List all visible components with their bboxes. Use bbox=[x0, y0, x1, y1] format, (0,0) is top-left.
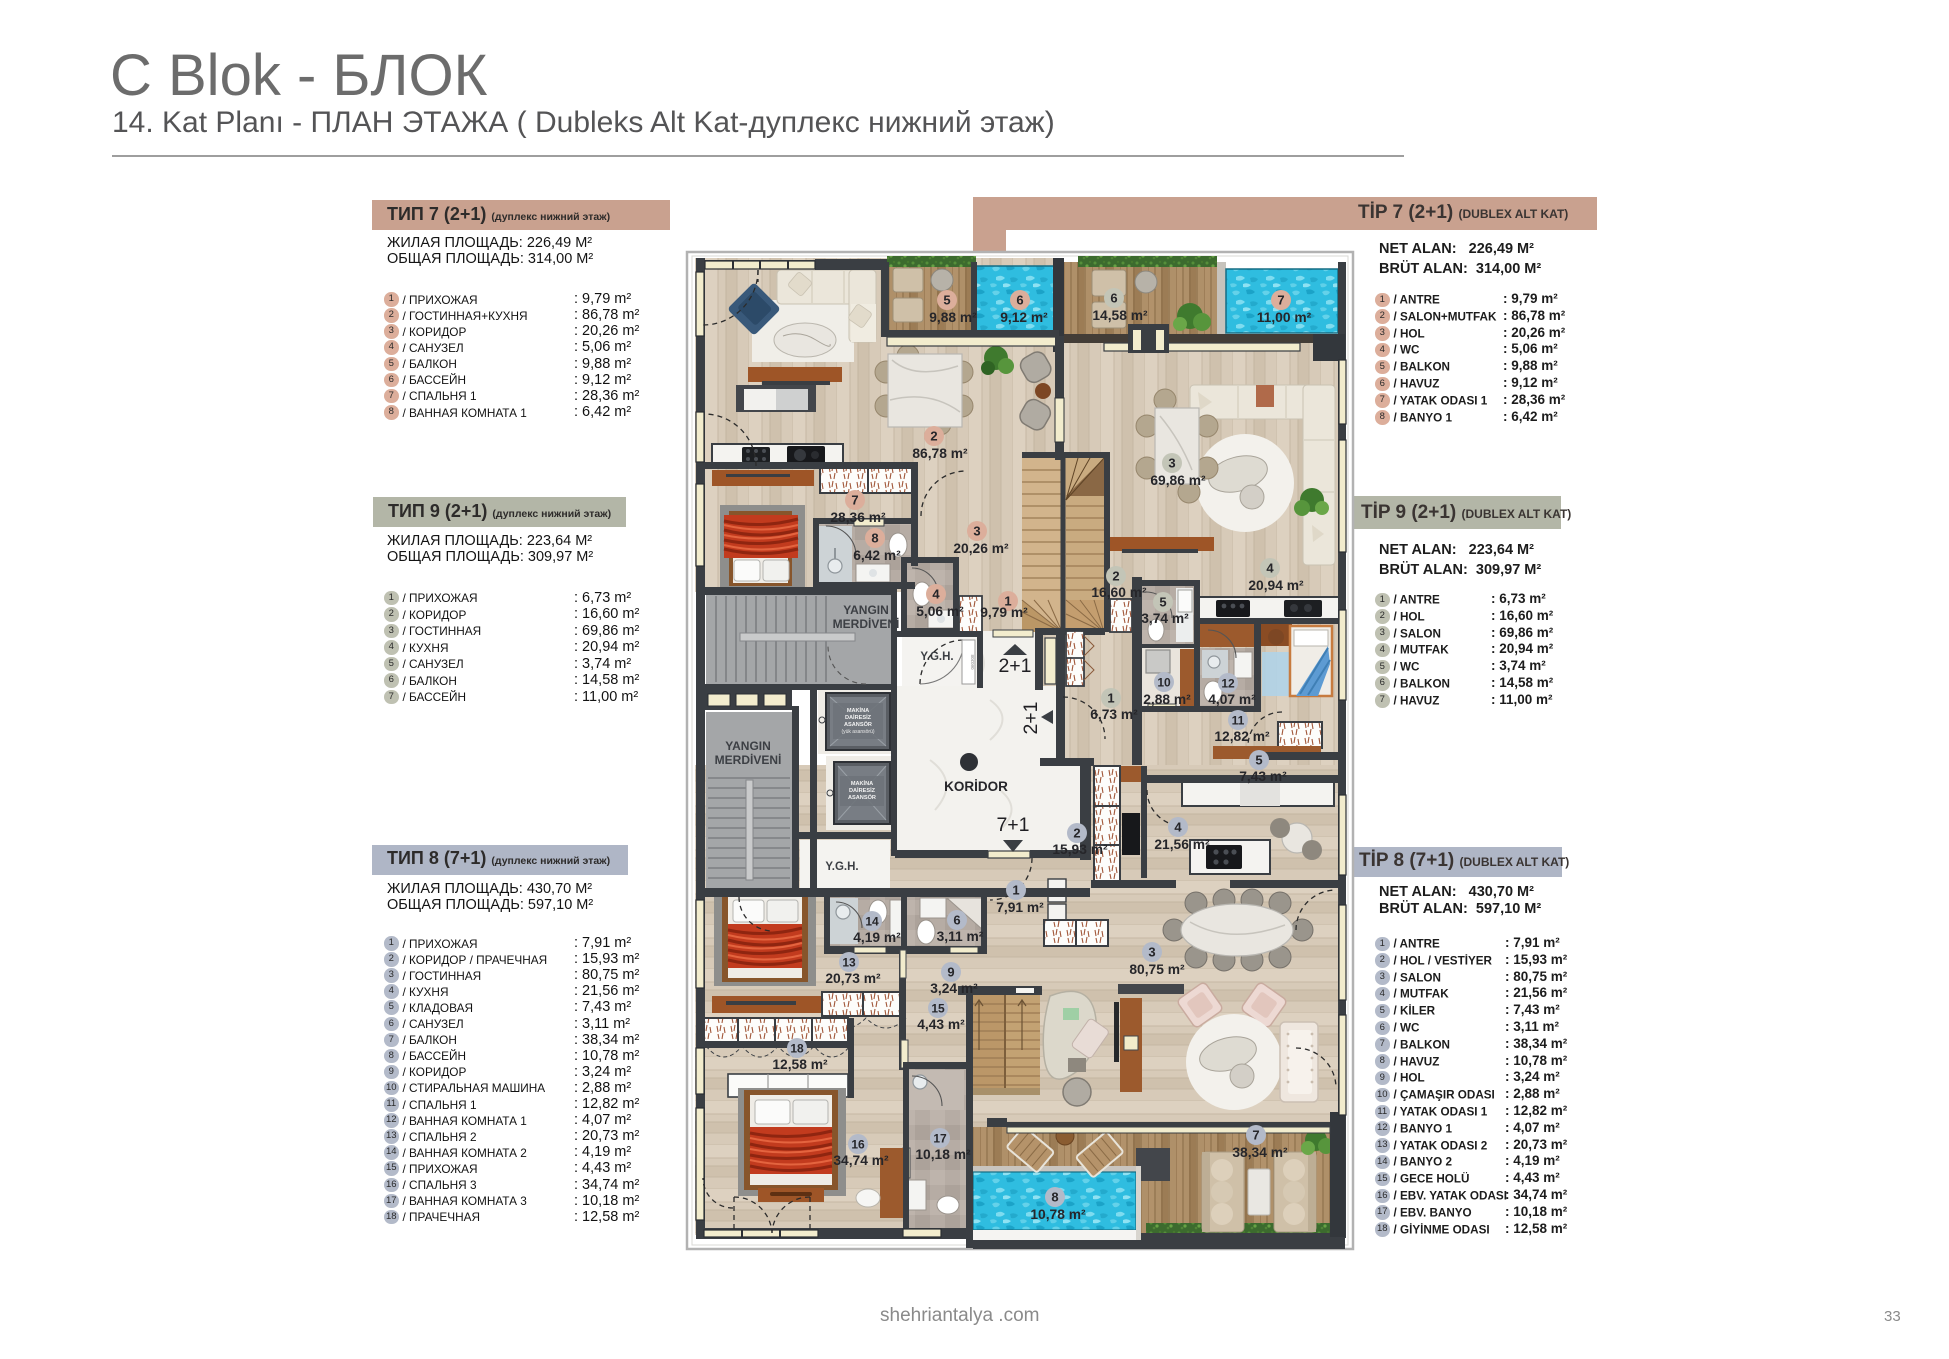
svg-text:21,56 m²: 21,56 m² bbox=[1154, 837, 1210, 852]
svg-text:3,24 m²: 3,24 m² bbox=[930, 981, 978, 996]
svg-text:9: 9 bbox=[947, 965, 954, 980]
svg-text:2+1: 2+1 bbox=[1020, 701, 1042, 734]
svg-text:4: 4 bbox=[1174, 820, 1182, 835]
svg-text:Y.G.H.: Y.G.H. bbox=[920, 651, 953, 663]
svg-text:38,34 m²: 38,34 m² bbox=[1232, 1145, 1288, 1160]
svg-text:12,58 m²: 12,58 m² bbox=[772, 1057, 828, 1072]
svg-text:ASANSÖR: ASANSÖR bbox=[844, 721, 872, 728]
svg-text:14,58 m²: 14,58 m² bbox=[1092, 308, 1148, 323]
svg-text:11: 11 bbox=[1232, 714, 1245, 728]
svg-text:20,94 m²: 20,94 m² bbox=[1248, 578, 1304, 593]
svg-text:8: 8 bbox=[1051, 1190, 1058, 1205]
svg-text:5: 5 bbox=[1255, 753, 1262, 768]
svg-text:2: 2 bbox=[930, 429, 937, 444]
svg-text:10,78 m²: 10,78 m² bbox=[1030, 1207, 1086, 1222]
svg-text:8: 8 bbox=[871, 531, 878, 546]
svg-text:1: 1 bbox=[1107, 691, 1114, 706]
svg-text:(yük asansörü): (yük asansörü) bbox=[841, 729, 874, 735]
svg-text:4,07 m²: 4,07 m² bbox=[1208, 692, 1256, 707]
svg-text:3: 3 bbox=[1148, 945, 1155, 960]
svg-text:7: 7 bbox=[1277, 293, 1284, 308]
svg-text:13: 13 bbox=[842, 956, 856, 970]
svg-text:2,88 m²: 2,88 m² bbox=[1143, 692, 1191, 707]
svg-text:12: 12 bbox=[1221, 677, 1235, 691]
svg-text:3: 3 bbox=[1168, 456, 1175, 471]
svg-text:DAİRESİZ: DAİRESİZ bbox=[849, 787, 876, 794]
svg-text:18: 18 bbox=[790, 1042, 804, 1056]
svg-text:4: 4 bbox=[932, 587, 940, 602]
svg-text:7+1: 7+1 bbox=[996, 814, 1029, 836]
svg-text:4: 4 bbox=[1266, 561, 1274, 576]
svg-text:7: 7 bbox=[1252, 1128, 1259, 1143]
svg-text:69,86 m²: 69,86 m² bbox=[1150, 473, 1206, 488]
svg-text:6: 6 bbox=[1110, 291, 1117, 306]
svg-text:9,12 m²: 9,12 m² bbox=[1000, 310, 1048, 325]
svg-text:060308: 060308 bbox=[970, 654, 975, 670]
svg-text:KORİDOR: KORİDOR bbox=[944, 779, 1008, 794]
svg-text:YANGIN: YANGIN bbox=[843, 603, 889, 617]
svg-text:4,43 m²: 4,43 m² bbox=[917, 1017, 965, 1032]
svg-text:34,74 m²: 34,74 m² bbox=[833, 1153, 889, 1168]
svg-text:MAKİNA: MAKİNA bbox=[847, 707, 869, 714]
svg-text:2: 2 bbox=[1073, 826, 1080, 841]
svg-text:3,74 m²: 3,74 m² bbox=[1141, 611, 1189, 626]
svg-text:MERDİVENİ: MERDİVENİ bbox=[715, 752, 782, 767]
svg-text:10,18 m²: 10,18 m² bbox=[915, 1147, 971, 1162]
svg-text:6,73 m²: 6,73 m² bbox=[1090, 707, 1138, 722]
svg-text:9,88 m²: 9,88 m² bbox=[929, 310, 977, 325]
svg-text:16,60 m²: 16,60 m² bbox=[1091, 585, 1147, 600]
svg-text:3: 3 bbox=[973, 524, 980, 539]
svg-text:20,26 m²: 20,26 m² bbox=[953, 541, 1009, 556]
svg-text:9,79 m²: 9,79 m² bbox=[980, 605, 1028, 620]
svg-text:80,75 m²: 80,75 m² bbox=[1129, 962, 1185, 977]
svg-text:28,36 m²: 28,36 m² bbox=[830, 510, 886, 525]
svg-text:7,91 m²: 7,91 m² bbox=[996, 900, 1044, 915]
svg-text:15,93 m²: 15,93 m² bbox=[1052, 842, 1108, 857]
svg-text:DAİRESİZ: DAİRESİZ bbox=[845, 714, 872, 721]
svg-text:11,00 m²: 11,00 m² bbox=[1257, 310, 1312, 325]
svg-text:16: 16 bbox=[851, 1138, 865, 1152]
svg-text:2: 2 bbox=[1112, 569, 1119, 584]
svg-text:5,06 m²: 5,06 m² bbox=[916, 604, 964, 619]
svg-text:15: 15 bbox=[931, 1002, 945, 1016]
svg-text:YANGIN: YANGIN bbox=[725, 739, 771, 753]
svg-text:10: 10 bbox=[1157, 676, 1171, 690]
svg-text:Y.G.H.: Y.G.H. bbox=[825, 861, 858, 873]
svg-text:12,82 m²: 12,82 m² bbox=[1214, 729, 1270, 744]
svg-text:6: 6 bbox=[1016, 293, 1023, 308]
svg-text:ASANSÖR: ASANSÖR bbox=[848, 794, 876, 801]
svg-text:14: 14 bbox=[865, 915, 879, 929]
svg-text:86,78 m²: 86,78 m² bbox=[912, 446, 968, 461]
svg-text:MERDİVENİ: MERDİVENİ bbox=[833, 616, 900, 631]
svg-text:20,73 m²: 20,73 m² bbox=[825, 971, 881, 986]
svg-text:5: 5 bbox=[943, 293, 950, 308]
svg-text:2+1: 2+1 bbox=[998, 655, 1031, 677]
svg-text:17: 17 bbox=[933, 1132, 947, 1146]
svg-text:1: 1 bbox=[1012, 883, 1019, 898]
svg-text:7: 7 bbox=[851, 493, 858, 508]
svg-text:6: 6 bbox=[953, 913, 960, 928]
svg-text:5: 5 bbox=[1159, 595, 1166, 610]
svg-text:4,19 m²: 4,19 m² bbox=[853, 930, 901, 945]
svg-text:7,43 m²: 7,43 m² bbox=[1239, 769, 1287, 784]
svg-text:3,11 m²: 3,11 m² bbox=[937, 929, 984, 944]
svg-text:6,42 m²: 6,42 m² bbox=[853, 548, 901, 563]
svg-text:MAKİNA: MAKİNA bbox=[851, 780, 873, 787]
